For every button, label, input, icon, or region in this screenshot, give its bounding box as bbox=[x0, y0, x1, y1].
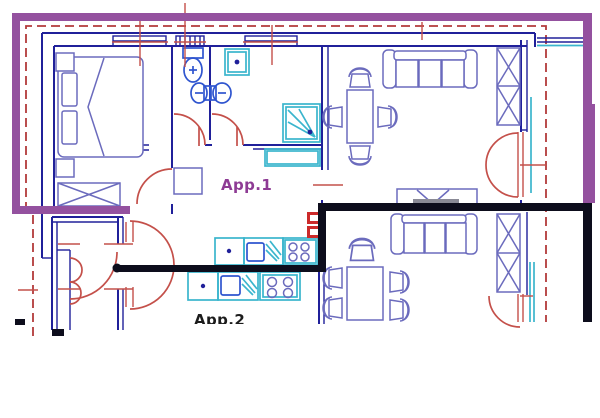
wardrobe-symbol bbox=[497, 214, 520, 292]
tv-unit-symbol bbox=[397, 189, 477, 205]
chair-symbol bbox=[390, 299, 409, 321]
washbasin-symbol bbox=[191, 83, 210, 103]
chair-symbol bbox=[378, 106, 397, 128]
bathroom-fixtures bbox=[211, 49, 320, 166]
bedroom-furniture bbox=[56, 53, 143, 206]
armchair-symbol bbox=[349, 239, 374, 261]
floor-plan-canvas: App.1 App.2 bbox=[0, 0, 600, 418]
app2-door-swing bbox=[489, 294, 533, 327]
floor-plan-drawing bbox=[0, 0, 600, 418]
chair-symbol bbox=[323, 297, 342, 319]
bathtub-symbol bbox=[265, 149, 320, 166]
chair-symbol bbox=[349, 68, 371, 87]
toilet-symbol bbox=[183, 48, 203, 82]
wc-door-swing bbox=[174, 114, 205, 145]
dining-table-symbol bbox=[347, 90, 373, 143]
window-wc bbox=[176, 36, 204, 46]
kitchen-2 bbox=[188, 272, 300, 300]
dining-table-symbol bbox=[347, 267, 383, 320]
shower-symbol bbox=[283, 104, 320, 142]
nightstand-symbol bbox=[56, 53, 74, 71]
apartment1-label: App.1 bbox=[221, 176, 272, 194]
washbasin-symbol bbox=[211, 83, 231, 103]
kitchen-1 bbox=[215, 212, 321, 265]
chair-symbol bbox=[323, 106, 342, 128]
washing-machine-symbol bbox=[225, 49, 249, 75]
nightstand-symbol bbox=[56, 159, 74, 177]
hob-symbol bbox=[283, 238, 318, 265]
window-bathroom bbox=[245, 36, 297, 46]
chest-symbol bbox=[58, 183, 120, 206]
sofa-symbol bbox=[391, 214, 477, 254]
apartment2-label: App.2 bbox=[194, 311, 245, 324]
wc-fixtures bbox=[183, 48, 210, 103]
sofa-symbol bbox=[383, 50, 477, 88]
bathroom-door-swing bbox=[212, 114, 243, 145]
hall-door-swing bbox=[70, 252, 117, 304]
sink-unit-symbol bbox=[244, 238, 283, 265]
desk-symbol bbox=[174, 168, 202, 194]
bedroom-door-swing bbox=[137, 169, 172, 204]
living-room-double-door bbox=[486, 132, 546, 197]
bed-symbol bbox=[58, 57, 143, 157]
wardrobe-symbol bbox=[497, 48, 520, 125]
chair-symbol bbox=[349, 146, 371, 165]
chair-symbol bbox=[390, 271, 409, 293]
sink-unit-symbol bbox=[218, 272, 258, 300]
hob-symbol bbox=[260, 272, 300, 300]
hall-furniture bbox=[174, 168, 202, 194]
